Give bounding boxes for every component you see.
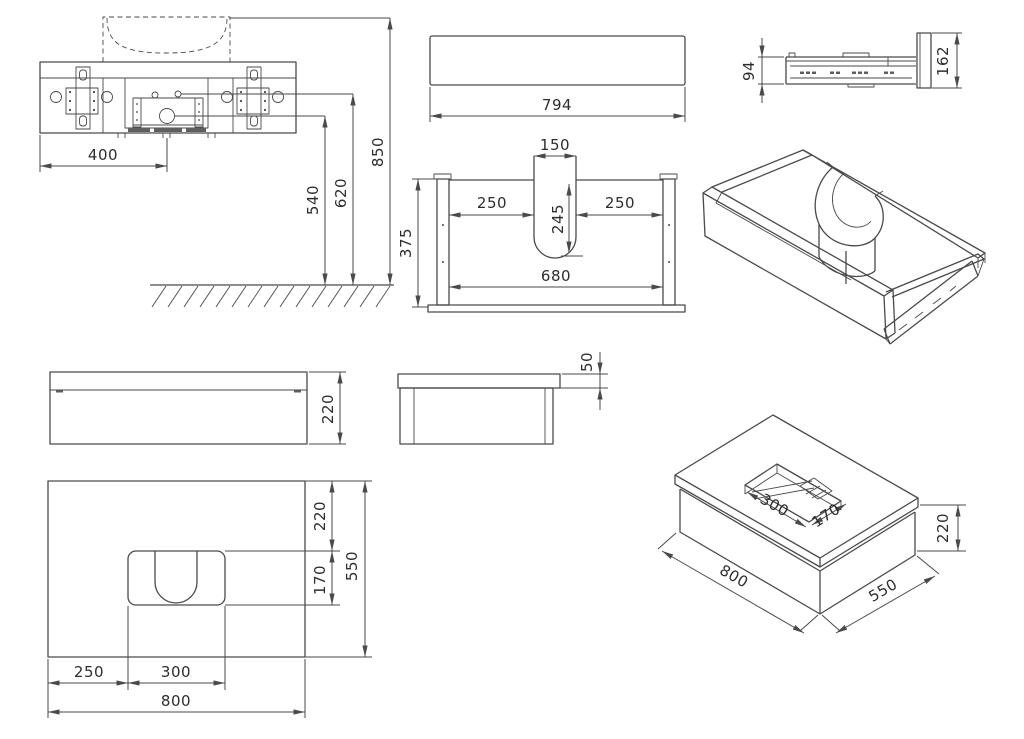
dim-supply-height-620: 620 (181, 94, 353, 285)
dim-cutout-depth-170: 170 (225, 551, 340, 605)
vanity-3d-view: 300 170 220 800 550 (658, 415, 966, 633)
drawer-front-edge (917, 33, 931, 88)
dim-cabinet-height-220: 220 (309, 372, 346, 444)
cabinet-front-view: 220 (50, 372, 346, 444)
dim-label-680: 680 (541, 267, 571, 285)
dim-panel-width-794: 794 (430, 87, 685, 122)
dim-left-offset-250: 250 (48, 606, 128, 718)
dim-label-550-3d: 550 (865, 575, 900, 606)
dim-height-220-3d: 220 (917, 505, 966, 551)
dim-cutout-depth-170-3d: 170 (809, 500, 846, 532)
dim-box-height-375: 375 (397, 179, 434, 307)
dim-label-850: 850 (369, 137, 387, 167)
basin-bowl-plan (155, 551, 197, 603)
dim-label-250-left: 250 (477, 194, 507, 212)
dim-label-375: 375 (397, 228, 415, 258)
dim-label-220-front: 220 (319, 394, 337, 424)
dim-depth-550-3d: 550 (822, 556, 939, 633)
dim-label-620: 620 (332, 178, 350, 208)
dim-back-offset-220: 220 (225, 481, 372, 551)
dim-label-250-plan: 250 (74, 663, 104, 681)
dim-bracket-spacing-400: 400 (40, 135, 167, 172)
dim-label-800-plan: 800 (161, 692, 191, 710)
countertop-plan-view: 220 170 550 250 300 800 (48, 481, 372, 718)
drawer-slide-side-view: 94 162 (740, 33, 962, 103)
mounting-bracket-left (66, 67, 98, 129)
cabinet-side-view: 50 (398, 352, 608, 444)
basin-cutout-plan (128, 551, 225, 605)
dim-label-170-plan: 170 (311, 565, 329, 595)
vanity-technical-drawing: 400 540 620 850 794 (0, 0, 1024, 739)
dim-label-170-3d: 170 (809, 500, 844, 532)
drawer-box-outline (428, 174, 685, 312)
dim-inner-width-680: 680 (449, 267, 663, 287)
dim-label-800-3d: 800 (716, 561, 751, 592)
drawer-box-front-view: 150 250 250 245 680 375 (397, 136, 685, 312)
dim-overall-height-850: 850 (230, 18, 390, 285)
wall-mounting-front-view: 400 540 620 850 (40, 17, 394, 307)
dim-label-94: 94 (740, 61, 758, 81)
dim-label-220-plan: 220 (311, 501, 329, 531)
dim-label-150: 150 (540, 136, 570, 154)
drawer-front-panel-view: 794 (430, 36, 685, 122)
plumbing-recess (118, 91, 215, 138)
dim-countertop-thickness-50: 50 (555, 352, 608, 410)
dim-label-540: 540 (304, 185, 322, 215)
fixing-holes (51, 92, 284, 103)
dim-right-clearance-250: 250 (576, 194, 663, 215)
mounting-bracket-right (237, 67, 269, 129)
dim-cutout-width-150: 150 (534, 136, 576, 156)
dim-label-220-3d: 220 (934, 513, 952, 543)
dim-label-300-plan: 300 (161, 663, 191, 681)
dim-label-50: 50 (578, 352, 596, 372)
washbasin-dashed-outline (103, 17, 230, 62)
front-panel-outline (430, 36, 685, 85)
dim-left-clearance-250: 250 (449, 194, 534, 215)
dim-cutout-depth-245: 245 (549, 184, 583, 256)
dim-label-250-right: 250 (605, 194, 635, 212)
floor-hatching (150, 285, 394, 307)
dim-label-400: 400 (88, 146, 118, 164)
slide-rail (786, 53, 916, 87)
drawer-3d-view (703, 150, 985, 344)
dim-label-162: 162 (934, 46, 952, 76)
dim-label-794: 794 (542, 96, 572, 114)
dim-slide-height-94: 94 (740, 38, 784, 103)
dim-drain-height-540: 540 (175, 116, 326, 285)
dim-width-800-3d: 800 (658, 533, 818, 633)
dim-front-height-162: 162 (932, 33, 962, 88)
dim-label-245: 245 (549, 204, 567, 234)
dim-label-550-plan: 550 (343, 551, 361, 581)
dim-cutout-width-300: 300 (128, 606, 225, 690)
drawing-sheet: 400 540 620 850 794 (0, 0, 1024, 739)
